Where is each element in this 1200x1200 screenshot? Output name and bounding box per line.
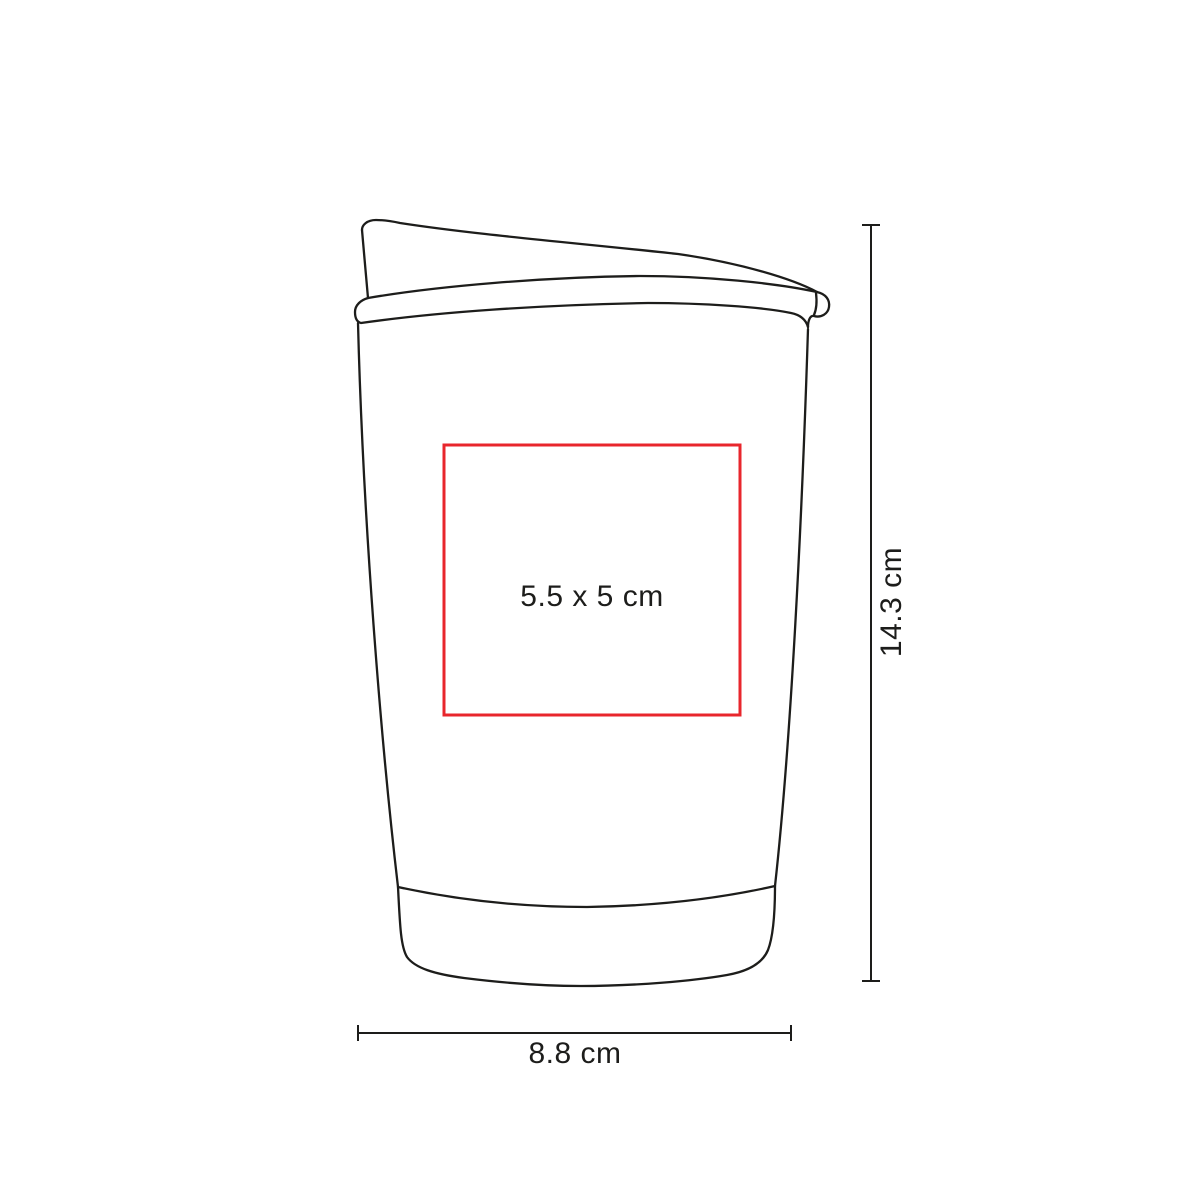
diagram-canvas: 5.5 x 5 cm 14.3 cm 8.8 cm: [0, 0, 1200, 1200]
tumbler-lid-left-edge: [362, 230, 368, 298]
width-dimension: 8.8 cm: [358, 1025, 791, 1070]
tumbler-lid-spout-lip: [808, 292, 829, 327]
tumbler-rim-line: [355, 298, 808, 327]
print-area-label: 5.5 x 5 cm: [520, 580, 663, 613]
print-area: 5.5 x 5 cm: [444, 445, 740, 715]
width-dimension-label: 8.8 cm: [528, 1037, 621, 1070]
tumbler-lid-spout-front-edge: [814, 293, 817, 315]
height-dimension-label: 14.3 cm: [875, 547, 908, 657]
tumbler-lid-ridge-line: [368, 276, 817, 298]
height-dimension: 14.3 cm: [862, 225, 908, 981]
tumbler-base-band-line: [398, 886, 775, 907]
product-dimension-diagram: 5.5 x 5 cm 14.3 cm 8.8 cm: [0, 0, 1200, 1200]
